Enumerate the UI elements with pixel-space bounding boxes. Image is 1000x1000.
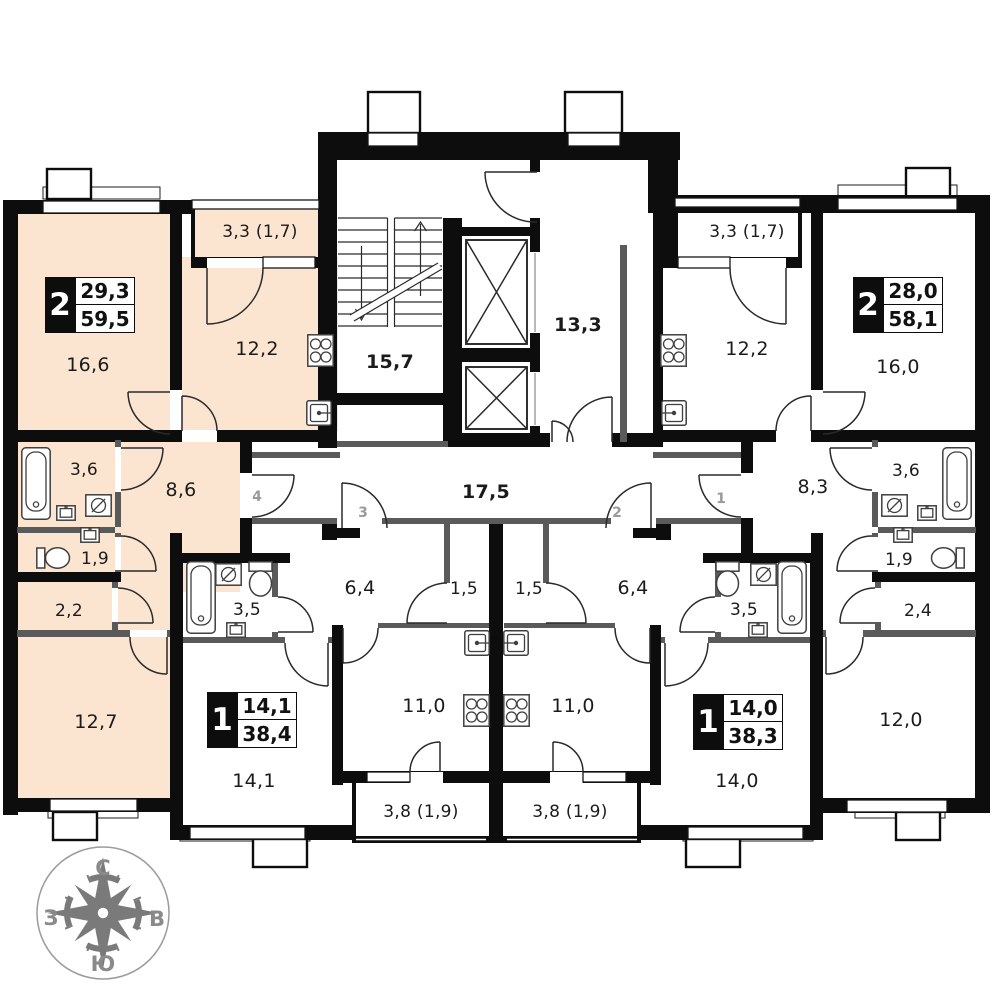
door-number: 4 xyxy=(252,489,262,505)
apartment-badge: 2 28,0 58,1 xyxy=(853,277,943,333)
stove-icon xyxy=(504,695,529,726)
room-label: 14,1 xyxy=(232,770,276,792)
sink-icon xyxy=(57,506,75,520)
room-label: 14,0 xyxy=(715,770,759,792)
stove-icon xyxy=(308,335,333,366)
toilet-icon xyxy=(249,562,272,596)
room-label: 1,9 xyxy=(885,550,913,570)
room-label: 3,8 (1,9) xyxy=(532,802,607,822)
room-label: 3,5 xyxy=(730,600,758,620)
room-label: 12,2 xyxy=(725,338,769,360)
room-label: 8,6 xyxy=(165,479,196,501)
room-label: 11,0 xyxy=(551,695,595,717)
room-label: 12,0 xyxy=(879,709,923,731)
kitchen-sink-icon xyxy=(504,631,528,655)
washing-machine-icon xyxy=(86,495,111,516)
room-label: 3,3 (1,7) xyxy=(222,222,297,242)
elevator-icon xyxy=(466,240,527,429)
kitchen-sink-icon xyxy=(307,401,331,425)
toilet-icon xyxy=(932,548,965,568)
room-label: 13,3 xyxy=(554,314,602,336)
apartment-badge: 2 29,3 59,5 xyxy=(45,277,135,333)
bathtub-icon xyxy=(22,448,50,519)
living-area: 14,1 xyxy=(237,692,297,720)
balcony-slab-box xyxy=(368,92,420,133)
room-label: 2,4 xyxy=(904,601,932,621)
living-area: 29,3 xyxy=(75,277,135,305)
compass-north: С xyxy=(95,856,110,880)
room-label: 12,2 xyxy=(235,338,279,360)
living-area: 14,0 xyxy=(723,694,783,722)
toilet-icon xyxy=(716,562,739,596)
room-label: 16,0 xyxy=(876,356,920,378)
sink-icon xyxy=(81,528,99,542)
room-label: 11,0 xyxy=(402,695,446,717)
total-area: 58,1 xyxy=(883,305,943,333)
total-area: 59,5 xyxy=(75,305,135,333)
floor-plan: С В Ю З 16,6 3,3 (1,7) 12,2 15,7 13,3 3,… xyxy=(0,0,1000,1000)
washing-machine-icon xyxy=(751,564,776,585)
room-label: 3,5 xyxy=(233,600,261,620)
room-label: 1,9 xyxy=(81,549,109,569)
sink-icon xyxy=(749,623,767,637)
room-label: 3,8 (1,9) xyxy=(383,802,458,822)
room-label: 6,4 xyxy=(344,577,375,599)
bathtub-icon xyxy=(778,562,806,633)
room-label: 12,7 xyxy=(74,711,118,733)
room-label: 17,5 xyxy=(462,481,510,503)
living-area: 28,0 xyxy=(883,277,943,305)
door-number: 1 xyxy=(716,491,726,507)
room-label: 15,7 xyxy=(366,351,414,373)
sink-icon xyxy=(918,506,936,520)
compass-east: В xyxy=(149,907,165,931)
compass-rose-icon: С В Ю З xyxy=(37,847,169,979)
stove-icon xyxy=(661,335,686,366)
sink-icon xyxy=(227,623,245,637)
room-label: 1,5 xyxy=(515,579,543,599)
apartment-badge: 1 14,1 38,4 xyxy=(207,692,297,748)
apartment-badge: 1 14,0 38,3 xyxy=(693,694,783,750)
room-label: 1,5 xyxy=(450,579,478,599)
room-label: 3,6 xyxy=(70,460,98,480)
room-label: 8,3 xyxy=(797,476,828,498)
room-count: 1 xyxy=(693,694,723,750)
room-label: 6,4 xyxy=(617,577,648,599)
toilet-icon xyxy=(37,548,70,568)
door-number: 2 xyxy=(612,505,622,521)
total-area: 38,3 xyxy=(723,722,783,750)
room-label: 2,2 xyxy=(55,601,83,621)
washing-machine-icon xyxy=(216,564,241,585)
kitchen-sink-icon xyxy=(662,401,686,425)
bathtub-icon xyxy=(943,448,971,519)
room-count: 1 xyxy=(207,692,237,748)
bathtub-icon xyxy=(187,562,215,633)
compass-south: Ю xyxy=(91,952,116,976)
room-label: 3,6 xyxy=(892,461,920,481)
washing-machine-icon xyxy=(882,495,907,516)
total-area: 38,4 xyxy=(237,720,297,748)
balcony-slab-box xyxy=(565,92,622,133)
room-label: 16,6 xyxy=(66,354,110,376)
room-count: 2 xyxy=(853,277,883,333)
room-label: 3,3 (1,7) xyxy=(709,222,784,242)
stove-icon xyxy=(464,695,489,726)
compass-west: З xyxy=(44,906,59,930)
sink-icon xyxy=(894,528,912,542)
door-number: 3 xyxy=(358,505,368,521)
stairs-icon xyxy=(338,216,442,328)
kitchen-sink-icon xyxy=(465,631,489,655)
room-count: 2 xyxy=(45,277,75,333)
